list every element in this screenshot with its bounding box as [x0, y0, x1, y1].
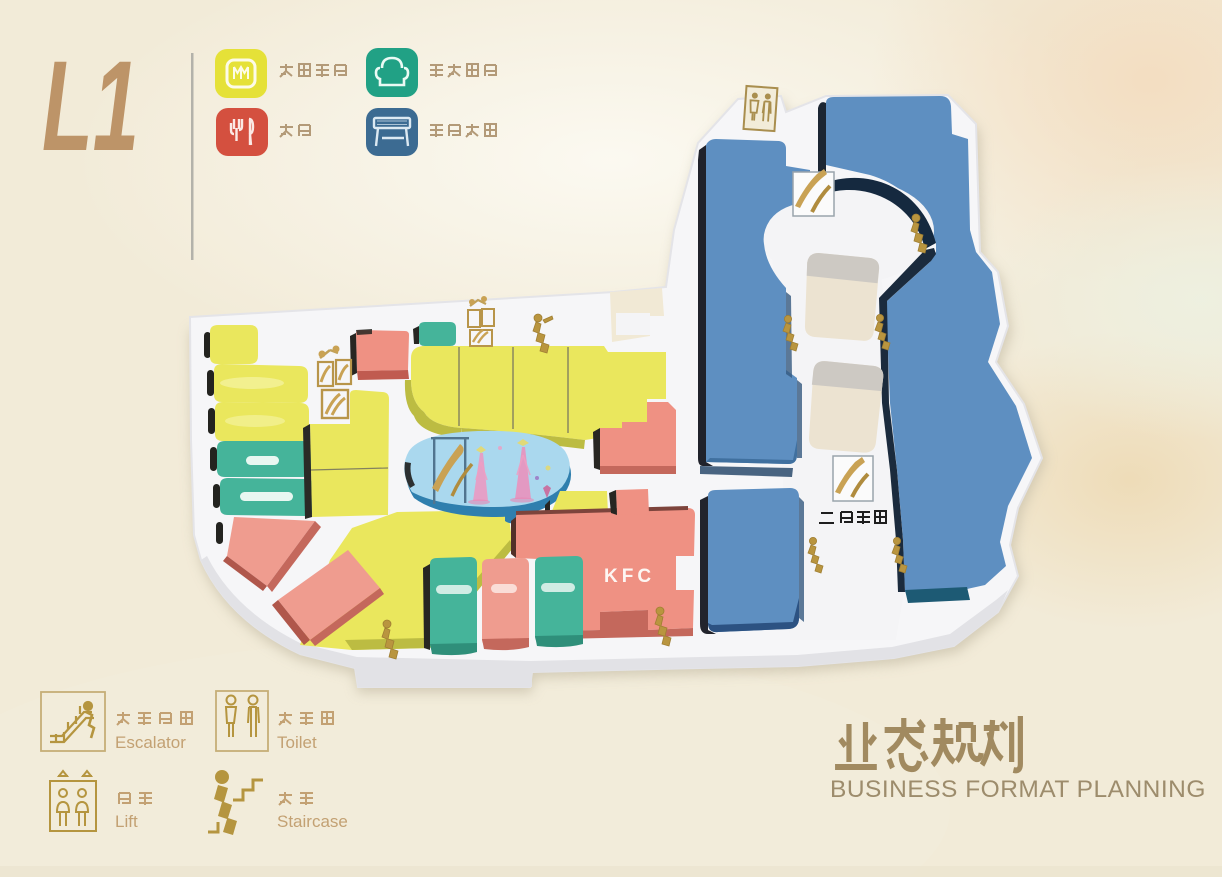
svg-text:L1: L1: [42, 35, 139, 178]
svg-text:Staircase: Staircase: [277, 812, 348, 831]
svg-text:BUSINESS FORMAT PLANNING: BUSINESS FORMAT PLANNING: [830, 776, 1206, 803]
svg-text:Lift: Lift: [115, 812, 138, 831]
svg-text:KFC: KFC: [604, 566, 655, 587]
svg-text:Escalator: Escalator: [115, 733, 186, 752]
svg-text:Toilet: Toilet: [277, 733, 317, 752]
